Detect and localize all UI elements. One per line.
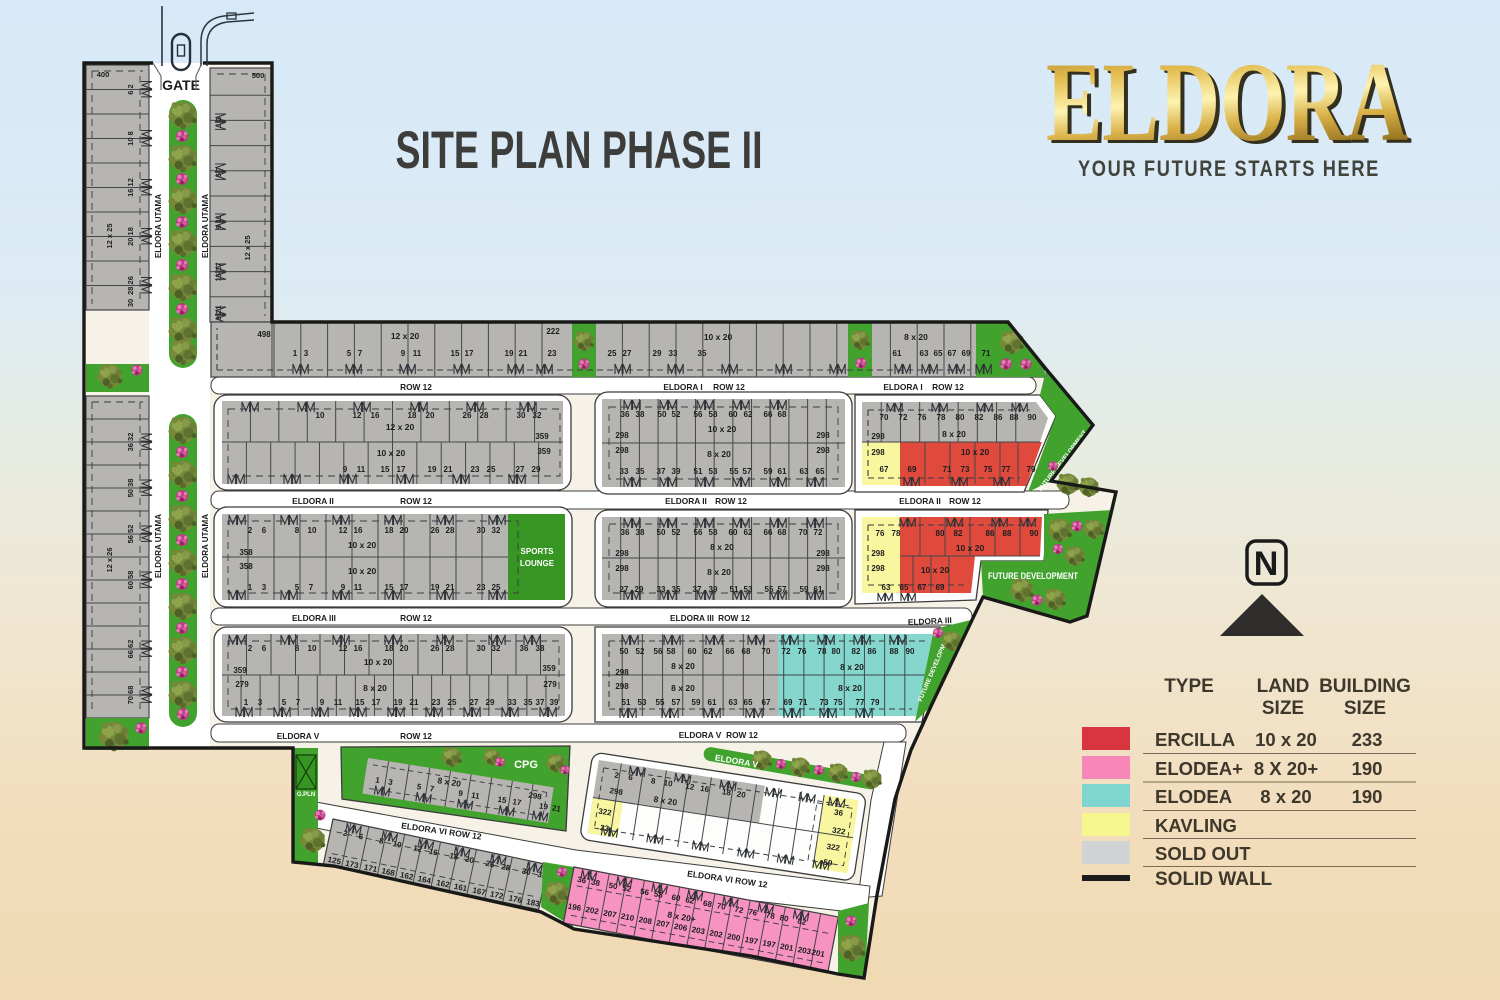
svg-text:298: 298 (615, 549, 629, 558)
svg-text:3: 3 (262, 583, 267, 592)
svg-text:32: 32 (492, 644, 501, 653)
svg-text:27: 27 (516, 465, 525, 474)
svg-text:69: 69 (784, 698, 793, 707)
svg-text:72: 72 (899, 413, 908, 422)
svg-text:73: 73 (820, 698, 829, 707)
svg-text:75: 75 (834, 698, 843, 707)
svg-text:30: 30 (477, 644, 486, 653)
svg-text:90: 90 (1028, 413, 1037, 422)
svg-text:16: 16 (371, 411, 380, 420)
svg-text:5: 5 (282, 698, 287, 707)
svg-text:62: 62 (744, 528, 753, 537)
svg-text:16: 16 (354, 644, 363, 653)
svg-text:72: 72 (814, 528, 823, 537)
svg-text:10 x 20: 10 x 20 (708, 424, 737, 434)
svg-text:33: 33 (508, 698, 517, 707)
svg-text:CPG: CPG (514, 759, 538, 771)
svg-text:10: 10 (316, 411, 325, 420)
svg-text:SIZE: SIZE (1262, 698, 1304, 719)
svg-text:30: 30 (126, 299, 135, 307)
svg-text:58: 58 (709, 410, 718, 419)
svg-text:19: 19 (431, 583, 440, 592)
svg-text:17: 17 (397, 465, 406, 474)
svg-text:8 x 20: 8 x 20 (671, 683, 695, 693)
svg-text:66 62: 66 62 (126, 640, 135, 659)
svg-text:70: 70 (799, 528, 808, 537)
svg-text:298: 298 (615, 682, 629, 691)
svg-text:70 68: 70 68 (126, 686, 135, 705)
svg-text:ELDORA I: ELDORA I (883, 382, 922, 392)
svg-text:65: 65 (744, 698, 753, 707)
svg-text:279: 279 (235, 680, 249, 689)
svg-text:19: 19 (428, 465, 437, 474)
svg-text:66: 66 (764, 528, 773, 537)
svg-text:33: 33 (669, 349, 678, 358)
svg-text:KAVLING: KAVLING (1155, 815, 1237, 836)
svg-text:69: 69 (908, 465, 917, 474)
svg-text:1: 1 (293, 349, 298, 358)
svg-text:9: 9 (401, 349, 406, 358)
svg-text:8 x 20: 8 x 20 (904, 332, 928, 342)
svg-text:298: 298 (816, 431, 830, 440)
svg-text:30: 30 (517, 411, 526, 420)
svg-text:52: 52 (672, 528, 681, 537)
svg-text:ROW 12: ROW 12 (932, 382, 964, 392)
svg-text:67: 67 (948, 349, 957, 358)
svg-text:60: 60 (688, 647, 697, 656)
svg-text:233: 233 (1352, 729, 1383, 750)
svg-text:7: 7 (309, 583, 314, 592)
svg-text:LOUNGE: LOUNGE (520, 559, 555, 568)
svg-text:63: 63 (800, 467, 809, 476)
svg-text:10: 10 (308, 526, 317, 535)
svg-text:8 x 20: 8 x 20 (671, 661, 695, 671)
svg-text:63: 63 (920, 349, 929, 358)
svg-text:28 26: 28 26 (126, 276, 135, 295)
svg-text:12: 12 (353, 411, 362, 420)
svg-text:28: 28 (446, 526, 455, 535)
svg-text:80: 80 (936, 529, 945, 538)
svg-text:23: 23 (477, 583, 486, 592)
svg-text:17: 17 (465, 349, 474, 358)
svg-text:61: 61 (893, 349, 902, 358)
svg-text:63: 63 (729, 698, 738, 707)
svg-text:90: 90 (1030, 529, 1039, 538)
svg-text:88: 88 (1003, 529, 1012, 538)
svg-text:62: 62 (704, 647, 713, 656)
svg-text:66: 66 (726, 647, 735, 656)
svg-text:10 x 20: 10 x 20 (961, 447, 990, 457)
svg-text:37: 37 (657, 467, 666, 476)
svg-text:16: 16 (354, 526, 363, 535)
svg-text:20: 20 (400, 644, 409, 653)
svg-text:56: 56 (654, 647, 663, 656)
svg-text:298: 298 (871, 549, 885, 558)
svg-text:359: 359 (535, 432, 549, 441)
svg-text:222: 222 (546, 327, 560, 336)
svg-text:58: 58 (667, 647, 676, 656)
svg-text:56: 56 (694, 528, 703, 537)
svg-text:ELDORA: ELDORA (1046, 40, 1408, 165)
svg-text:YOUR FUTURE STARTS HERE: YOUR FUTURE STARTS HERE (1078, 156, 1380, 181)
svg-text:55: 55 (730, 467, 739, 476)
svg-text:86: 86 (994, 413, 1003, 422)
svg-text:10: 10 (308, 644, 317, 653)
svg-text:3: 3 (304, 349, 309, 358)
svg-text:21: 21 (519, 349, 528, 358)
svg-text:11: 11 (354, 583, 363, 592)
svg-text:6: 6 (262, 526, 267, 535)
svg-text:TYPE: TYPE (1164, 676, 1214, 697)
svg-text:33: 33 (620, 467, 629, 476)
svg-text:59: 59 (692, 698, 701, 707)
svg-text:ROW 12: ROW 12 (400, 613, 432, 623)
svg-text:38: 38 (536, 644, 545, 653)
svg-text:52: 52 (636, 647, 645, 656)
svg-text:ELDORA II: ELDORA II (292, 496, 334, 506)
svg-text:ROW 12: ROW 12 (949, 496, 981, 506)
svg-text:72: 72 (782, 647, 791, 656)
svg-text:BUILDING: BUILDING (1319, 676, 1411, 697)
svg-text:51: 51 (622, 698, 631, 707)
svg-text:25: 25 (608, 349, 617, 358)
svg-text:8 x 20: 8 x 20 (838, 683, 862, 693)
svg-text:10 x 20: 10 x 20 (377, 448, 406, 458)
svg-text:ELDORA UTAMA: ELDORA UTAMA (201, 514, 210, 578)
svg-text:ELDORA I: ELDORA I (663, 382, 702, 392)
svg-text:80: 80 (832, 647, 841, 656)
svg-text:SIZE: SIZE (1344, 698, 1386, 719)
svg-text:7: 7 (358, 349, 363, 358)
svg-text:77: 77 (1002, 465, 1011, 474)
svg-text:86: 86 (868, 647, 877, 656)
svg-text:61: 61 (708, 698, 717, 707)
svg-text:3: 3 (258, 698, 263, 707)
svg-text:8 x 20: 8 x 20 (942, 429, 966, 439)
svg-text:19: 19 (505, 349, 514, 358)
svg-text:298: 298 (871, 432, 885, 441)
svg-text:29: 29 (653, 349, 662, 358)
svg-text:358: 358 (239, 562, 253, 571)
svg-text:76: 76 (918, 413, 927, 422)
svg-text:27: 27 (623, 349, 632, 358)
svg-text:27: 27 (470, 698, 479, 707)
svg-text:ERCILLA: ERCILLA (1155, 729, 1235, 750)
svg-text:ROW 12: ROW 12 (400, 731, 432, 741)
svg-text:38: 38 (636, 410, 645, 419)
svg-text:25: 25 (448, 698, 457, 707)
svg-text:8 x 20: 8 x 20 (363, 683, 387, 693)
svg-text:67: 67 (762, 698, 771, 707)
svg-text:9: 9 (320, 698, 325, 707)
svg-text:11: 11 (334, 698, 343, 707)
svg-text:ELDORA UTAMA: ELDORA UTAMA (154, 194, 163, 258)
svg-text:79: 79 (871, 698, 880, 707)
svg-text:70: 70 (880, 413, 889, 422)
svg-text:32: 32 (533, 411, 542, 420)
svg-text:82: 82 (852, 647, 861, 656)
svg-text:68: 68 (778, 528, 787, 537)
svg-text:ELDORA II: ELDORA II (665, 496, 707, 506)
svg-text:19: 19 (394, 698, 403, 707)
svg-text:60: 60 (729, 410, 738, 419)
svg-text:28: 28 (446, 644, 455, 653)
svg-text:2: 2 (248, 526, 253, 535)
svg-text:30: 30 (477, 526, 486, 535)
svg-text:190: 190 (1352, 758, 1383, 779)
svg-text:52: 52 (672, 410, 681, 419)
svg-text:90: 90 (906, 647, 915, 656)
svg-text:358: 358 (239, 548, 253, 557)
svg-text:6 2: 6 2 (126, 84, 135, 94)
svg-text:73: 73 (961, 465, 970, 474)
svg-text:10 x 20: 10 x 20 (704, 332, 733, 342)
svg-text:ROW 12: ROW 12 (726, 730, 758, 740)
svg-text:298: 298 (615, 431, 629, 440)
svg-text:79: 79 (1027, 465, 1036, 474)
svg-text:50: 50 (658, 410, 667, 419)
svg-text:88: 88 (890, 647, 899, 656)
svg-text:55: 55 (765, 585, 774, 594)
svg-text:25: 25 (487, 465, 496, 474)
svg-text:8 x 20: 8 x 20 (710, 542, 734, 552)
svg-text:76: 76 (876, 529, 885, 538)
svg-text:39: 39 (550, 698, 559, 707)
svg-text:53: 53 (709, 467, 718, 476)
svg-text:53: 53 (638, 698, 647, 707)
svg-text:12 x 20: 12 x 20 (391, 331, 420, 341)
svg-text:ROW 12: ROW 12 (713, 382, 745, 392)
svg-text:12: 12 (339, 526, 348, 535)
svg-text:ROW 12: ROW 12 (715, 496, 747, 506)
svg-text:190: 190 (1352, 786, 1383, 807)
svg-text:65: 65 (934, 349, 943, 358)
svg-text:298: 298 (871, 448, 885, 457)
svg-text:71: 71 (799, 698, 808, 707)
svg-text:10 x 20: 10 x 20 (364, 657, 393, 667)
svg-text:61: 61 (778, 467, 787, 476)
svg-text:78: 78 (818, 647, 827, 656)
svg-text:9: 9 (343, 465, 348, 474)
svg-text:SPORTS: SPORTS (521, 547, 555, 556)
svg-text:36 32: 36 32 (126, 433, 135, 452)
svg-text:ELDORA V: ELDORA V (277, 731, 320, 741)
svg-text:10 x 20: 10 x 20 (348, 566, 377, 576)
svg-text:10 x 20: 10 x 20 (1255, 729, 1317, 750)
svg-text:359: 359 (537, 447, 551, 456)
svg-text:16 12: 16 12 (126, 178, 135, 197)
svg-text:12 x 20: 12 x 20 (386, 422, 415, 432)
svg-text:23: 23 (548, 349, 557, 358)
svg-text:20: 20 (426, 411, 435, 420)
svg-text:28: 28 (480, 411, 489, 420)
svg-text:71: 71 (982, 349, 991, 358)
svg-text:36: 36 (621, 528, 630, 537)
svg-text:GATE: GATE (162, 77, 200, 93)
svg-text:298: 298 (615, 668, 629, 677)
svg-text:8 x 20: 8 x 20 (1260, 786, 1311, 807)
svg-text:15: 15 (381, 465, 390, 474)
svg-text:68: 68 (778, 410, 787, 419)
svg-text:29: 29 (532, 465, 541, 474)
svg-text:ELDORA UTAMA: ELDORA UTAMA (154, 514, 163, 578)
svg-text:10 8: 10 8 (126, 131, 135, 146)
svg-text:58: 58 (709, 528, 718, 537)
svg-text:279: 279 (543, 680, 557, 689)
svg-text:18: 18 (408, 411, 417, 420)
svg-text:80: 80 (956, 413, 965, 422)
svg-text:50: 50 (657, 528, 666, 537)
svg-text:8: 8 (295, 644, 300, 653)
svg-text:23: 23 (471, 465, 480, 474)
svg-text:78: 78 (937, 413, 946, 422)
svg-text:75: 75 (984, 465, 993, 474)
svg-text:ROW 12: ROW 12 (400, 382, 432, 392)
svg-text:SOLID WALL: SOLID WALL (1155, 869, 1273, 890)
svg-text:ELODEA+: ELODEA+ (1155, 758, 1243, 779)
svg-text:62: 62 (744, 410, 753, 419)
svg-text:39: 39 (672, 467, 681, 476)
svg-text:50 38: 50 38 (126, 479, 135, 498)
svg-text:12: 12 (339, 644, 348, 653)
svg-text:ELODEA: ELODEA (1155, 786, 1232, 807)
svg-text:59: 59 (764, 467, 773, 476)
svg-text:5: 5 (347, 349, 352, 358)
svg-text:63: 63 (882, 583, 891, 592)
svg-text:10 x 20: 10 x 20 (956, 543, 985, 553)
svg-text:88: 88 (1010, 413, 1019, 422)
svg-text:23: 23 (432, 698, 441, 707)
svg-text:21: 21 (444, 465, 453, 474)
svg-text:8 X 20+: 8 X 20+ (1254, 758, 1318, 779)
svg-text:36: 36 (621, 410, 630, 419)
svg-text:ELDORA V: ELDORA V (679, 730, 722, 740)
svg-text:56 52: 56 52 (126, 525, 135, 544)
svg-text:76: 76 (798, 647, 807, 656)
svg-text:50: 50 (620, 647, 629, 656)
svg-text:69: 69 (936, 583, 945, 592)
svg-text:1: 1 (248, 583, 253, 592)
svg-text:11: 11 (413, 349, 422, 358)
svg-text:298: 298 (816, 564, 830, 573)
svg-text:SOLD OUT: SOLD OUT (1155, 843, 1251, 864)
svg-text:18: 18 (385, 644, 394, 653)
svg-text:359: 359 (542, 664, 556, 673)
svg-text:18: 18 (385, 526, 394, 535)
svg-text:12 x 26: 12 x 26 (105, 547, 114, 572)
svg-text:2: 2 (248, 644, 253, 653)
svg-text:65: 65 (816, 467, 825, 476)
svg-text:8: 8 (295, 526, 300, 535)
svg-text:298: 298 (816, 549, 830, 558)
svg-text:60: 60 (729, 528, 738, 537)
svg-text:17: 17 (372, 698, 381, 707)
svg-text:68: 68 (742, 647, 751, 656)
svg-text:8 x 20: 8 x 20 (707, 449, 731, 459)
svg-text:57: 57 (672, 698, 681, 707)
svg-text:56: 56 (694, 410, 703, 419)
svg-text:6: 6 (262, 644, 267, 653)
svg-text:ROW 12: ROW 12 (718, 613, 750, 623)
svg-text:32: 32 (492, 526, 501, 535)
svg-text:37: 37 (536, 698, 545, 707)
svg-text:35: 35 (524, 698, 533, 707)
svg-text:11: 11 (357, 465, 366, 474)
svg-text:12 x 25: 12 x 25 (105, 223, 114, 248)
svg-text:55: 55 (656, 698, 665, 707)
svg-text:12 x 25: 12 x 25 (243, 235, 252, 260)
svg-text:65: 65 (900, 583, 909, 592)
svg-text:26: 26 (431, 526, 440, 535)
svg-text:298: 298 (816, 446, 830, 455)
svg-text:26: 26 (431, 644, 440, 653)
svg-text:298: 298 (871, 564, 885, 573)
svg-text:77: 77 (856, 698, 865, 707)
svg-text:51: 51 (694, 467, 703, 476)
svg-text:LAND: LAND (1257, 676, 1310, 697)
svg-text:298: 298 (615, 564, 629, 573)
svg-text:298: 298 (615, 446, 629, 455)
svg-text:36: 36 (520, 644, 529, 653)
svg-text:SITE PLAN PHASE II: SITE PLAN PHASE II (396, 121, 763, 180)
svg-text:ROW 12: ROW 12 (400, 496, 432, 506)
svg-text:1: 1 (244, 698, 249, 707)
svg-text:82: 82 (975, 413, 984, 422)
svg-text:ELDORA III: ELDORA III (292, 613, 336, 623)
svg-text:G.PLN: G.PLN (297, 792, 315, 798)
svg-text:60 58: 60 58 (126, 571, 135, 590)
svg-text:10 x 20: 10 x 20 (348, 540, 377, 550)
svg-text:400: 400 (97, 70, 110, 79)
svg-text:71: 71 (943, 465, 952, 474)
svg-text:15: 15 (356, 698, 365, 707)
svg-text:66: 66 (764, 410, 773, 419)
svg-text:86: 86 (986, 529, 995, 538)
svg-text:ELDORA II: ELDORA II (899, 496, 941, 506)
svg-text:67: 67 (918, 583, 927, 592)
svg-text:20: 20 (400, 526, 409, 535)
svg-text:8 x 20: 8 x 20 (840, 662, 864, 672)
svg-text:FUTURE DEVELOPMENT: FUTURE DEVELOPMENT (988, 571, 1078, 582)
svg-text:ELDORA III: ELDORA III (670, 613, 714, 623)
svg-text:7: 7 (296, 698, 301, 707)
svg-text:N: N (1254, 545, 1279, 583)
svg-text:57: 57 (743, 467, 752, 476)
svg-text:20 18: 20 18 (126, 227, 135, 246)
svg-text:70: 70 (762, 647, 771, 656)
svg-text:10 x 20: 10 x 20 (921, 565, 950, 575)
svg-text:21: 21 (410, 698, 419, 707)
svg-text:35: 35 (636, 467, 645, 476)
svg-text:38: 38 (636, 528, 645, 537)
svg-text:67: 67 (880, 465, 889, 474)
svg-text:78: 78 (892, 529, 901, 538)
svg-text:29: 29 (486, 698, 495, 707)
svg-text:82: 82 (954, 529, 963, 538)
svg-text:8 x 20: 8 x 20 (707, 567, 731, 577)
svg-text:26: 26 (463, 411, 472, 420)
svg-text:498: 498 (257, 330, 271, 339)
svg-text:69: 69 (962, 349, 971, 358)
svg-text:359: 359 (233, 666, 247, 675)
svg-text:500: 500 (252, 71, 265, 80)
svg-text:35: 35 (698, 349, 707, 358)
svg-text:ELDORA UTAMA: ELDORA UTAMA (201, 194, 210, 258)
svg-text:15: 15 (451, 349, 460, 358)
